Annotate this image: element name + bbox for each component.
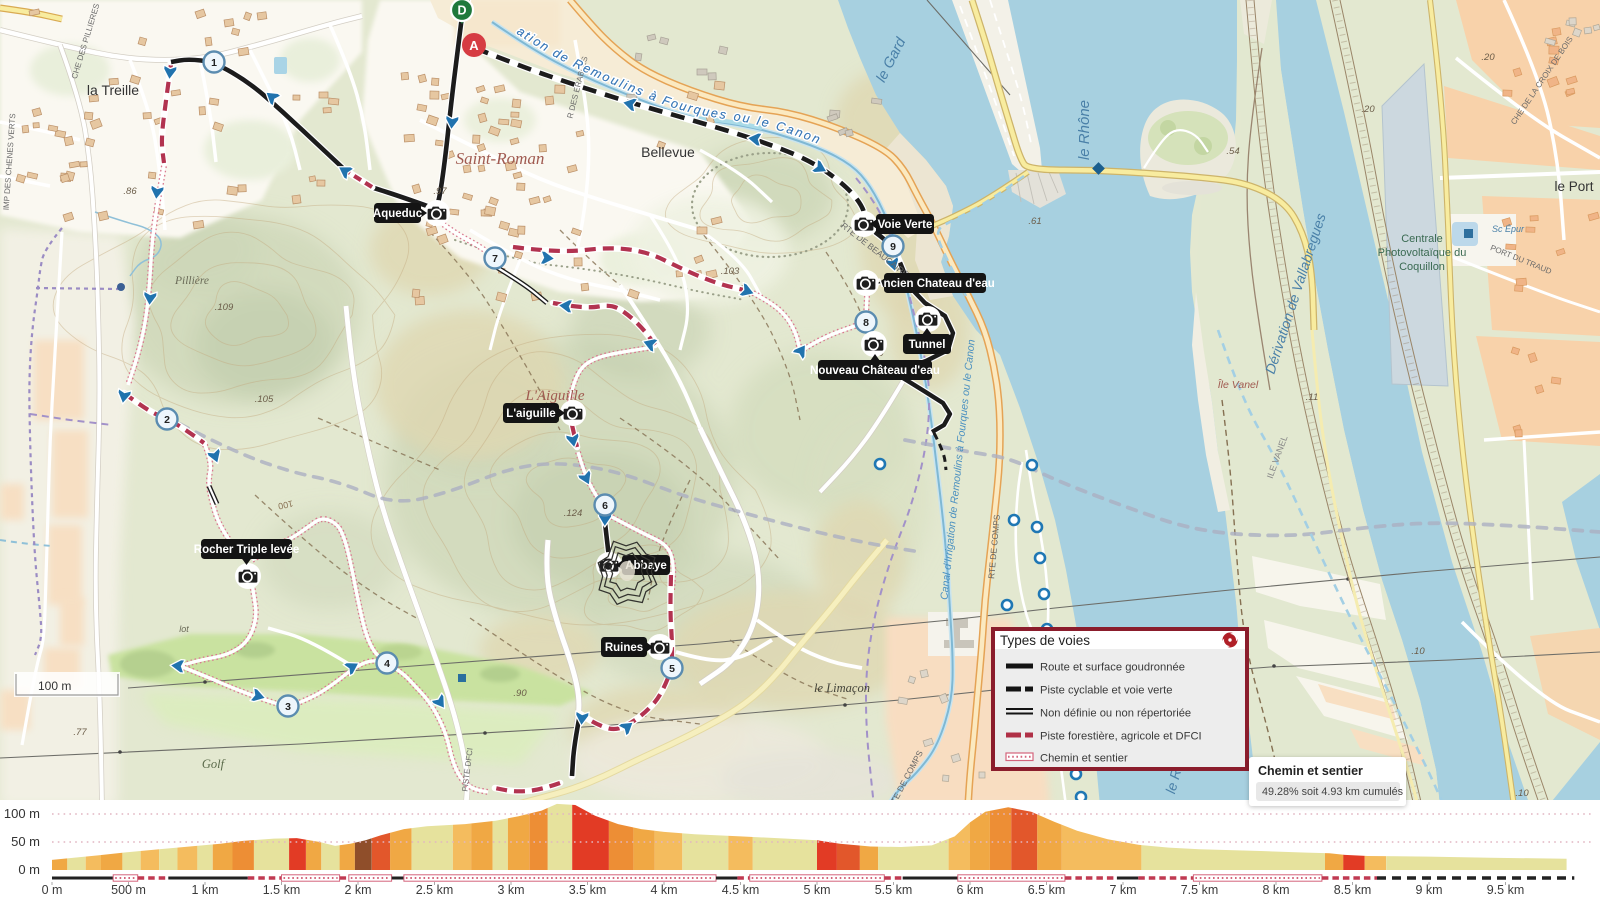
svg-text:4.5 km: 4.5 km [722,883,760,897]
svg-text:.10: .10 [1411,646,1425,657]
svg-text:.54: .54 [1226,146,1239,157]
svg-text:.10: .10 [1515,788,1529,799]
svg-text:Nouveau Château d'eau: Nouveau Château d'eau [810,365,940,377]
svg-text:Pillière: Pillière [174,275,209,287]
svg-text:Ancien Chateau d'eau: Ancien Chateau d'eau [875,278,995,290]
svg-text:5.5 km: 5.5 km [875,883,913,897]
svg-text:3: 3 [285,701,291,713]
svg-text:Bellevue: Bellevue [641,144,695,160]
svg-text:2.5 km: 2.5 km [416,883,454,897]
svg-text:9.5 km: 9.5 km [1487,883,1525,897]
svg-text:.105: .105 [255,394,274,405]
svg-text:.11: .11 [1306,392,1319,403]
svg-text:Piste forestière, agricole et: Piste forestière, agricole et DFCI [1040,731,1202,743]
svg-text:Aqueduc: Aqueduc [373,208,423,220]
svg-text:8.5 km: 8.5 km [1334,883,1372,897]
svg-text:0 m: 0 m [18,862,40,877]
svg-text:100 m: 100 m [4,806,40,821]
svg-text:Sc Épur: Sc Épur [1492,224,1525,234]
svg-text:4: 4 [384,658,390,670]
svg-text:7: 7 [492,253,498,265]
svg-text:le Rhône: le Rhône [1076,100,1093,160]
svg-text:Île Vanel: Île Vanel [1218,378,1259,391]
svg-text:Chemin et sentier: Chemin et sentier [1258,764,1363,778]
svg-text:.77: .77 [73,727,87,738]
svg-text:Non définie ou non répertoriée: Non définie ou non répertoriée [1040,708,1191,720]
svg-text:9 km: 9 km [1415,883,1442,897]
svg-text:6: 6 [602,500,608,512]
svg-text:.124: .124 [564,508,583,519]
svg-text:le Limaçon: le Limaçon [814,681,870,695]
svg-text:50 m: 50 m [11,834,40,849]
svg-text:A: A [469,38,479,53]
svg-text:.90: .90 [513,688,527,699]
svg-text:Route et surface goudronnée: Route et surface goudronnée [1040,662,1185,674]
svg-text:1.5 km: 1.5 km [263,883,301,897]
svg-text:le Port: le Port [1554,179,1593,194]
svg-text:6 km: 6 km [956,883,983,897]
svg-text:Saint-Roman: Saint-Roman [456,149,545,168]
svg-text:D: D [457,4,466,18]
svg-text:Ruines: Ruines [605,642,643,654]
svg-text:Voie Verte: Voie Verte [878,219,933,231]
svg-text:la Treille: la Treille [87,82,139,98]
svg-text:.61: .61 [1028,216,1041,227]
svg-text:Chemin et sentier: Chemin et sentier [1040,753,1128,765]
svg-text:1 km: 1 km [191,883,218,897]
svg-text:3.5 km: 3.5 km [569,883,607,897]
svg-text:7 km: 7 km [1109,883,1136,897]
svg-text:.97: .97 [433,186,447,197]
svg-text:4 km: 4 km [650,883,677,897]
svg-text:8: 8 [863,317,869,329]
svg-text:8 km: 8 km [1262,883,1289,897]
svg-text:5: 5 [669,663,675,675]
svg-text:5 km: 5 km [803,883,830,897]
svg-text:6.5 km: 6.5 km [1028,883,1066,897]
svg-text:Tunnel: Tunnel [909,339,946,351]
svg-text:2: 2 [164,414,170,426]
svg-text:Rocher Triple levée: Rocher Triple levée [194,544,299,556]
svg-text:.86: .86 [123,186,137,197]
svg-text:9: 9 [890,241,896,253]
svg-text:500 m: 500 m [111,883,146,897]
svg-text:.103: .103 [721,266,740,277]
svg-text:L'aiguille: L'aiguille [506,408,555,420]
svg-text:Types de voies: Types de voies [1000,633,1090,648]
svg-text:0 m: 0 m [42,883,63,897]
svg-text:1: 1 [211,57,217,69]
svg-text:Piste cyclable et voie verte: Piste cyclable et voie verte [1040,685,1172,697]
svg-text:100 m: 100 m [38,679,71,693]
svg-text:.20: .20 [1361,104,1375,115]
svg-text:2 km: 2 km [344,883,371,897]
svg-text:.109: .109 [215,302,234,313]
svg-text:Golf: Golf [202,757,226,771]
svg-text:Photovoltaïque du: Photovoltaïque du [1378,247,1467,259]
svg-text:Centrale: Centrale [1401,233,1443,245]
svg-text:.20: .20 [1481,52,1495,63]
svg-text:lot: lot [179,624,189,634]
svg-text:Coquillon: Coquillon [1399,261,1445,273]
svg-text:49.28% soit 4.93 km cumulés: 49.28% soit 4.93 km cumulés [1262,786,1404,798]
svg-text:3 km: 3 km [497,883,524,897]
svg-text:7.5 km: 7.5 km [1181,883,1219,897]
